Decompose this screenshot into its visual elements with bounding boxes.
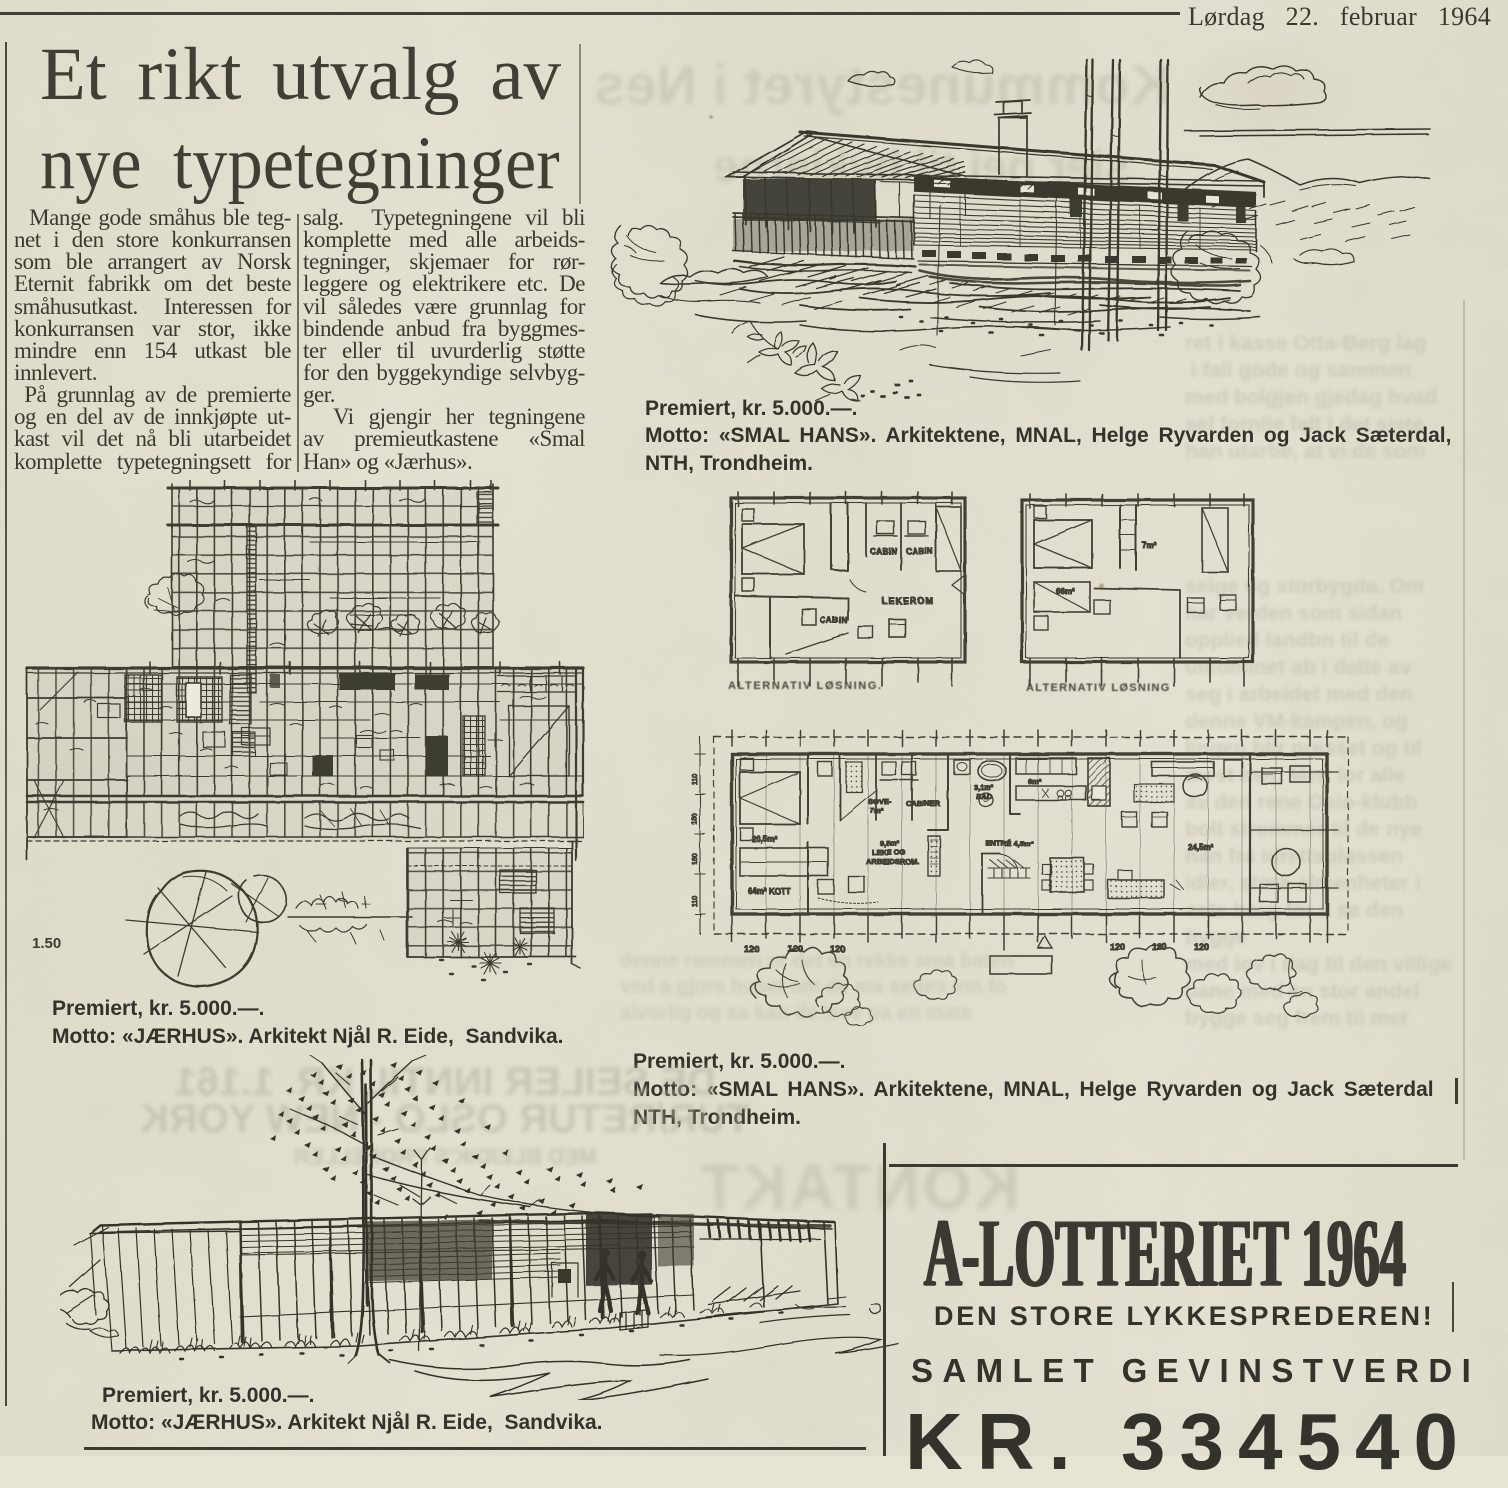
svg-text:66m²: 66m² <box>1056 587 1075 596</box>
svg-text:ALTERNATIV LØSNING.: ALTERNATIV LØSNING. <box>728 680 883 692</box>
svg-text:CABIN: CABIN <box>906 547 933 556</box>
svg-text:20,5m²: 20,5m² <box>752 835 778 844</box>
svg-text:9,5m²: 9,5m² <box>880 839 900 848</box>
svg-text:110: 110 <box>692 774 699 785</box>
svg-text:7m²: 7m² <box>1142 541 1157 550</box>
svg-text:ENTRÉ 4,5m²: ENTRÉ 4,5m² <box>986 839 1034 848</box>
svg-text:CABIN: CABIN <box>870 547 897 556</box>
svg-text:SOVE-: SOVE- <box>868 797 892 806</box>
svg-text:3,1m²: 3,1m² <box>974 783 994 792</box>
svg-text:ALTERNATIV LØSNING: ALTERNATIV LØSNING <box>1026 682 1171 694</box>
svg-text:6m²: 6m² <box>1028 777 1042 786</box>
svg-text:CABIN: CABIN <box>820 616 848 625</box>
svg-text:180: 180 <box>692 853 699 865</box>
svg-text:24,5m²: 24,5m² <box>1188 843 1214 852</box>
svg-text:64m² KOTT: 64m² KOTT <box>748 887 791 896</box>
svg-text:7m²: 7m² <box>870 806 884 815</box>
svg-text:180: 180 <box>692 813 699 825</box>
svg-text:110: 110 <box>692 896 699 907</box>
svg-text:ARBEIDSROM.: ARBEIDSROM. <box>866 857 919 866</box>
svg-text:LEKE OG: LEKE OG <box>872 848 906 857</box>
svg-text:LEKEROM: LEKEROM <box>882 596 934 606</box>
svg-text:120: 120 <box>1194 942 1209 952</box>
svg-text:1.50: 1.50 <box>32 935 61 952</box>
svg-text:CABINER: CABINER <box>906 799 941 808</box>
svg-text:BAD: BAD <box>976 792 993 801</box>
